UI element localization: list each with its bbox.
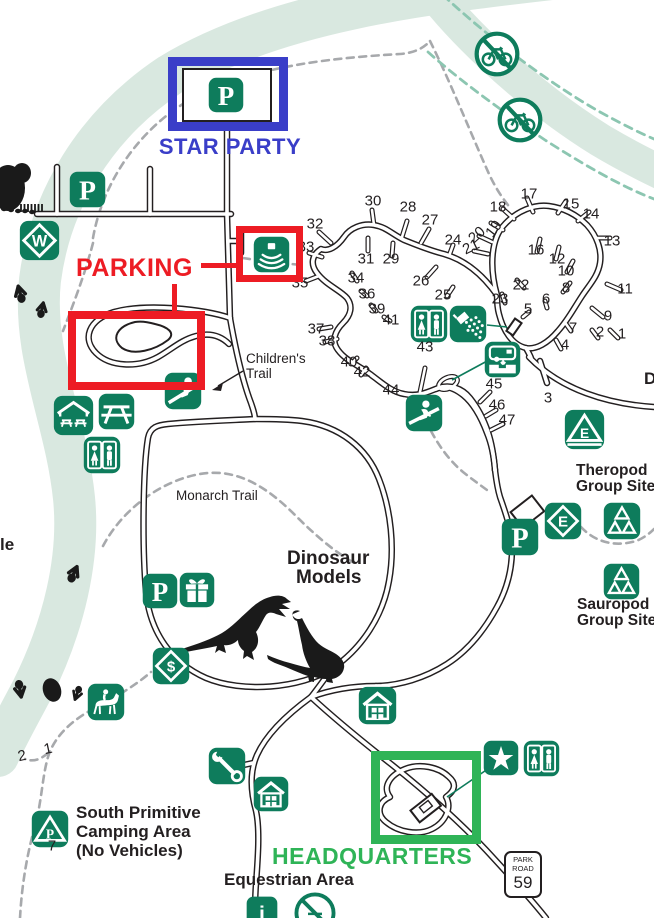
- parking-icon: P: [142, 573, 178, 609]
- campsite-number: 31: [358, 252, 375, 267]
- picnic-area-icon: [98, 393, 135, 430]
- dump-station-icon: [484, 341, 521, 378]
- childrens-trail-label-2: Trail: [246, 367, 272, 381]
- campsite-number: 5: [524, 302, 532, 317]
- svg-text:P: P: [152, 577, 169, 607]
- headquarters-label: HEADQUARTERS: [272, 843, 472, 870]
- campsite-number: 26: [413, 274, 430, 289]
- group-camp-icon: [603, 563, 640, 600]
- restroom-icon: [523, 740, 560, 777]
- trail-marker-number: 7: [48, 839, 56, 854]
- campsite-number: 2: [596, 325, 604, 340]
- campsite-number: 8: [562, 281, 570, 296]
- campsite-number: 29: [383, 252, 400, 267]
- park-road-sign-number: 59: [506, 874, 540, 891]
- campsite-number: 15: [563, 197, 580, 212]
- equestrian-area-label: Equestrian Area: [224, 871, 354, 889]
- svg-text:P: P: [79, 175, 96, 206]
- childrens-trail-label-1: Children's: [246, 352, 306, 366]
- campsite-number: 36: [359, 287, 376, 302]
- prohibited-icon: [294, 892, 336, 918]
- star-party-highlight-box: [168, 57, 288, 131]
- restroom-icon: [83, 436, 121, 474]
- campsite-number: 3: [544, 391, 552, 406]
- headquarters-star-icon: [483, 740, 519, 776]
- campsite-number: 14: [583, 207, 600, 222]
- campsite-number: 12: [549, 252, 566, 267]
- campsite-number: 38: [319, 334, 336, 349]
- residence-icon: [253, 776, 289, 812]
- campsite-number: 16: [528, 243, 545, 258]
- svg-text:W: W: [31, 232, 47, 250]
- south-primitive-label-3: (No Vehicles): [76, 842, 183, 860]
- park-road-59-sign: PARK ROAD 59: [504, 851, 542, 898]
- campsite-number: 1: [618, 327, 626, 342]
- campsite-number: 4: [561, 338, 569, 353]
- group-camp-icon: [603, 502, 641, 540]
- campsite-number: 27: [422, 213, 439, 228]
- dinosaur-silhouettes: [176, 596, 344, 683]
- no-bikes-icon: [497, 97, 543, 143]
- campsite-number: 6: [542, 292, 550, 307]
- campsite-number: 32: [307, 217, 324, 232]
- campsite-number: 11: [617, 282, 633, 297]
- parking-leader-line-v: [172, 284, 177, 313]
- parking-amphitheater-highlight-box: [236, 226, 303, 282]
- theropod-group-site-label-2: Group Site: [576, 479, 654, 495]
- svg-text:i: i: [259, 902, 265, 918]
- restroom-icon: [410, 305, 448, 343]
- park-map: PP W: [0, 0, 654, 918]
- south-primitive-label-1: South Primitive: [76, 804, 201, 822]
- campsite-number: 13: [604, 234, 621, 249]
- parking-icon: P: [501, 518, 539, 556]
- walk-in-camp-icon: E: [564, 409, 605, 450]
- exit-marker-icon: E: [544, 502, 582, 540]
- monarch-trail-label: Monarch Trail: [176, 489, 258, 503]
- parking-leader-line-h: [201, 263, 237, 268]
- parking-pads: [116, 69, 544, 822]
- information-icon: i: [246, 896, 278, 918]
- sauropod-silhouette: [267, 610, 344, 683]
- park-road-sign-line2: ROAD: [512, 864, 534, 873]
- no-bikes-icon: [474, 31, 520, 77]
- campsite-number: 30: [365, 194, 382, 209]
- campsite-number: 17: [521, 187, 538, 202]
- campsite-number: 18: [490, 200, 507, 215]
- campsite-number: 24: [445, 233, 462, 248]
- childrens-trail-arrow: [212, 371, 243, 391]
- gift-shop-icon: [179, 572, 215, 608]
- water-crossing-icon: W: [19, 220, 60, 261]
- campsite-number: 45: [486, 377, 503, 392]
- fee-station-icon: $: [152, 647, 190, 685]
- campsite-number: 44: [383, 383, 400, 398]
- sauropod-group-site-label-1: Sauropod: [577, 597, 649, 613]
- campsite-number: 41: [383, 313, 400, 328]
- shower-icon: [449, 305, 487, 343]
- parking-label: PARKING: [76, 254, 193, 283]
- svg-text:P: P: [511, 523, 528, 554]
- maintenance-icon: [208, 747, 246, 785]
- residence-icon: [358, 686, 397, 725]
- group-shelter-icon: [53, 395, 94, 436]
- campsite-number: 22: [513, 278, 530, 293]
- star-party-label: STAR PARTY: [150, 134, 310, 160]
- south-primitive-label-2: Camping Area: [76, 823, 191, 841]
- equestrian-icon: [87, 683, 125, 721]
- campsite-number: 43: [417, 340, 434, 355]
- campsite-number: 46: [489, 398, 506, 413]
- track-viewing-icon: [405, 394, 443, 432]
- dinosaur-models-label-2: Models: [296, 568, 361, 588]
- parking-icon: P: [69, 171, 106, 208]
- campsite-number: 25: [435, 288, 452, 303]
- campsite-number: 28: [400, 200, 417, 215]
- campsite-number: 7: [569, 321, 577, 336]
- campsite-number: 42: [354, 365, 371, 380]
- campsite-number: 23: [492, 292, 509, 307]
- campsite-number: 34: [348, 271, 365, 286]
- parking-loop-highlight-box: [68, 311, 205, 390]
- cutoff-label-left: le: [0, 536, 14, 554]
- cutoff-label-right: D: [644, 370, 654, 388]
- svg-text:E: E: [579, 426, 588, 441]
- campsite-number: 47: [499, 413, 516, 428]
- sauropod-group-site-label-2: Group Site: [577, 613, 654, 629]
- campsite-number: 9: [604, 309, 612, 324]
- theropod-group-site-label-1: Theropod: [576, 463, 647, 479]
- headquarters-highlight-box: [371, 751, 481, 844]
- dinosaur-models-label-1: Dinosaur: [287, 549, 369, 569]
- svg-text:$: $: [167, 658, 176, 675]
- svg-text:E: E: [558, 513, 568, 530]
